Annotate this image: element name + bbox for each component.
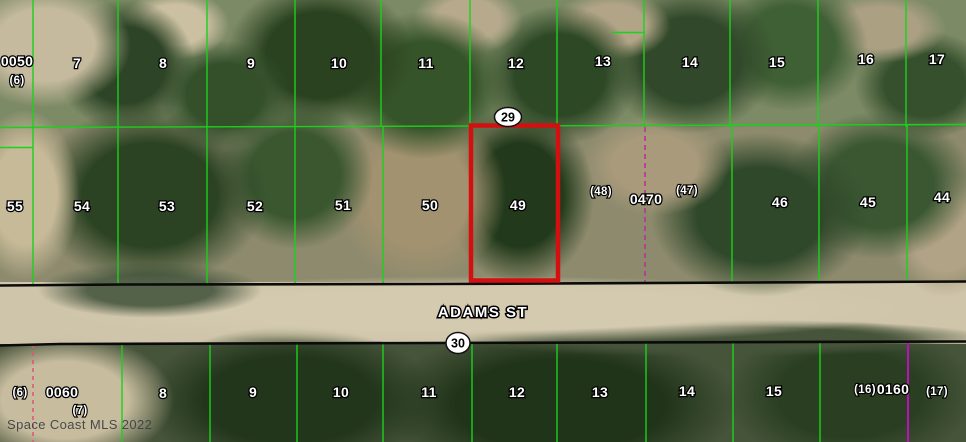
lot-label: 8: [159, 385, 167, 401]
lot-label: 10: [333, 384, 349, 400]
lot-label: 46: [772, 194, 788, 210]
lot-label: 54: [74, 198, 90, 214]
lot-label: 45: [860, 194, 876, 210]
lot-label: 11: [418, 55, 433, 71]
lot-label: 50: [422, 197, 438, 213]
lot-label: 9: [249, 384, 257, 400]
lot-label: 44: [934, 189, 950, 205]
lot-label: 10: [331, 55, 347, 71]
lot-label: (6): [13, 387, 28, 399]
lot-label: 12: [509, 384, 525, 400]
block-marker-30: 30: [446, 333, 470, 354]
lot-label: 9: [247, 55, 255, 71]
lot-labels-bottom-row: (6) 0060 (7) 8 9 10 11 12 13 14 15 (16) …: [13, 381, 948, 417]
street-name-label: ADAMS ST: [438, 304, 528, 321]
lot-label: 14: [679, 383, 695, 399]
parcel-lines: [0, 0, 966, 442]
lot-label: 13: [595, 53, 611, 69]
lot-label: 51: [335, 197, 351, 213]
lot-label: 49: [510, 197, 526, 213]
lot-label: 52: [247, 198, 263, 214]
map-overlay: 29 30 ADAMS ST 0050 (6) 7 8 9 10 11 12 1…: [0, 0, 966, 442]
lot-labels-middle-row: 55 54 53 52 51 50 49 (48) 0470 (47) 46 4…: [7, 185, 950, 214]
lot-label: 17: [929, 51, 945, 67]
block-marker-label: 29: [501, 111, 515, 125]
road-edge-line: [0, 342, 966, 346]
lot-label: 16: [858, 51, 874, 67]
lot-label: (6): [10, 75, 25, 87]
parcel-map: 29 30 ADAMS ST 0050 (6) 7 8 9 10 11 12 1…: [0, 0, 966, 442]
lot-label: 11: [421, 384, 436, 400]
lot-label: 8: [159, 55, 167, 71]
lot-label: 15: [769, 54, 785, 70]
lot-label: 15: [766, 383, 782, 399]
lot-label: 7: [73, 55, 81, 71]
lot-label: (7): [73, 405, 88, 417]
lot-label: (47): [676, 185, 698, 197]
lot-label: 13: [592, 384, 608, 400]
lot-label: 55: [7, 198, 23, 214]
lot-labels-top-row: 0050 (6) 7 8 9 10 11 12 13 14 15 16 17: [1, 51, 945, 87]
lot-label: 0470: [630, 191, 662, 207]
block-marker-29: 29: [495, 108, 522, 127]
lot-label: (16): [854, 384, 876, 396]
lot-label: 0060: [46, 384, 78, 400]
lot-label: 0050: [1, 53, 33, 69]
lot-label: (17): [926, 386, 948, 398]
lot-label: (48): [590, 186, 612, 198]
lot-label: 12: [508, 55, 524, 71]
block-marker-label: 30: [451, 337, 465, 351]
mls-watermark: Space Coast MLS 2022: [7, 417, 152, 432]
lot-label: 53: [159, 198, 175, 214]
lot-label: 14: [682, 54, 698, 70]
lot-label: 0160: [877, 381, 909, 397]
